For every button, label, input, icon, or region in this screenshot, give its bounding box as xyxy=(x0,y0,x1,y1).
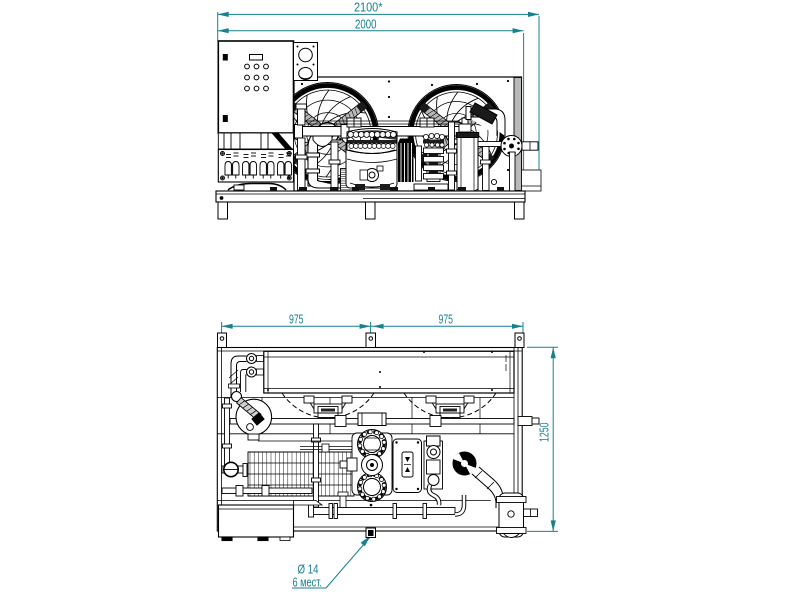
svg-text:2100*: 2100* xyxy=(354,1,383,15)
svg-text:975: 975 xyxy=(289,312,304,326)
svg-text:1250: 1250 xyxy=(538,422,552,442)
svg-text:Ø 14: Ø 14 xyxy=(298,563,319,577)
svg-text:6 мест.: 6 мест. xyxy=(293,576,323,590)
svg-text:2000: 2000 xyxy=(355,18,377,32)
svg-text:975: 975 xyxy=(439,312,454,326)
